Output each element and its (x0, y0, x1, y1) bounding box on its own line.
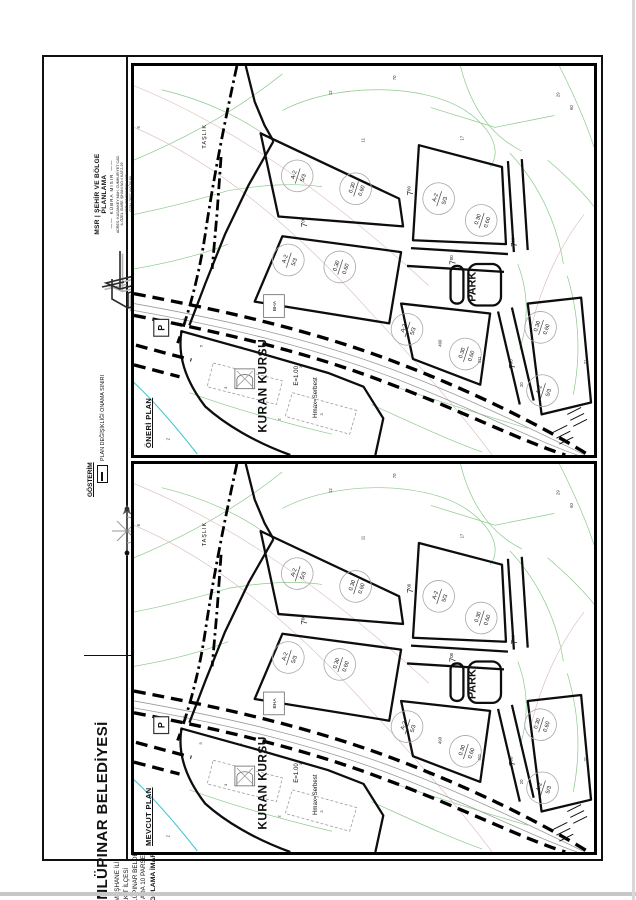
svg-text:5/3: 5/3 (545, 785, 553, 794)
svg-text:0.30: 0.30 (348, 579, 357, 591)
plan-sheet: MSR | ŞEHİR VE BÖLGE PLANLAMA KÜBRA MISI… (0, 0, 636, 900)
svg-text:490: 490 (438, 736, 443, 744)
onama-siniri-symbol (97, 465, 108, 483)
legend-title: GÖSTERİM (87, 355, 94, 497)
svg-text:3: 3 (299, 366, 303, 368)
svg-text:700: 700 (510, 237, 519, 247)
onama-boundary (178, 464, 237, 740)
svg-text:0.30: 0.30 (533, 320, 542, 332)
map-oneri: A-2 5/3 A-2 5/3 A-2 5/3 A-2 5/3 A-2 5/3 … (134, 66, 594, 455)
label-park: PARK (466, 669, 478, 699)
firm-person: KÜBRA MISIR (109, 141, 114, 247)
sidebar: MSR | ŞEHİR VE BÖLGE PLANLAMA KÜBRA MISI… (42, 55, 128, 861)
svg-text:5: 5 (199, 742, 203, 744)
svg-text:A-2: A-2 (290, 568, 298, 578)
svg-text:411: 411 (477, 356, 482, 363)
svg-text:12: 12 (328, 90, 333, 95)
svg-text:700: 700 (508, 756, 517, 766)
firm-name: MSR | ŞEHİR VE BÖLGE PLANLAMA (94, 141, 108, 247)
legend-item-label: PLAN DEĞİŞİKLİĞİ ONAMA SINIRI (100, 375, 106, 461)
municipality-title: ÜNLÜPINAR BELEDİYESİ (94, 663, 111, 900)
svg-text:31: 31 (583, 756, 588, 761)
svg-text:700: 700 (449, 255, 458, 265)
svg-text:A-2: A-2 (432, 193, 440, 203)
svg-text:0.30: 0.30 (458, 744, 467, 756)
svg-text:5/3: 5/3 (410, 724, 418, 733)
page-shadow-bottom (0, 892, 636, 896)
svg-text:700: 700 (406, 583, 415, 593)
svg-text:0.60: 0.60 (543, 323, 552, 335)
svg-text:0.30: 0.30 (348, 182, 357, 194)
ratio-circle: 0.30 0.60 (445, 731, 485, 771)
hatch-marks (553, 805, 587, 842)
building-footprints (207, 760, 356, 831)
svg-text:5/3: 5/3 (410, 327, 418, 336)
svg-text:13: 13 (182, 715, 187, 720)
zoning-circle: A-2 5/3 (387, 309, 427, 349)
svg-text:0.30: 0.30 (332, 657, 341, 669)
svg-text:A-2: A-2 (290, 170, 298, 180)
svg-text:60: 60 (569, 105, 574, 110)
svg-text:6: 6 (136, 126, 141, 129)
svg-text:2: 2 (166, 834, 171, 837)
zoning-circle: A-2 5/3 (277, 156, 317, 196)
svg-text:5/3: 5/3 (545, 388, 553, 397)
label-kuran-kursu: KURAN KURSU (256, 736, 270, 830)
map-mevcut: A-2 5/3 A-2 5/3 A-2 5/3 A-2 5/3 A-2 5/3 … (134, 464, 594, 852)
svg-text:700: 700 (508, 359, 517, 369)
svg-text:700: 700 (448, 652, 457, 662)
label-taslik: TAŞLIK (202, 522, 208, 547)
svg-text:A-2: A-2 (432, 590, 440, 600)
zoning-circle: A-2 5/3 (268, 638, 308, 678)
svg-text:31: 31 (583, 359, 588, 364)
svg-text:A-2: A-2 (536, 782, 544, 792)
page-shadow-right (632, 0, 635, 900)
label-bha: BHA (272, 698, 278, 709)
svg-text:29: 29 (555, 92, 560, 97)
panel-oneri-plan: A-2 5/3 A-2 5/3 A-2 5/3 A-2 5/3 A-2 5/3 … (131, 63, 597, 458)
svg-text:0.60: 0.60 (342, 661, 351, 673)
parcel-outlines (180, 464, 591, 852)
svg-text:5: 5 (239, 346, 243, 348)
svg-text:5/3: 5/3 (300, 173, 308, 182)
zoning-circle: A-2 5/3 (419, 179, 459, 219)
ratio-circle: 0.30 0.60 (336, 169, 376, 209)
svg-text:12: 12 (328, 488, 333, 493)
zoning-circle: A-2 5/3 (268, 240, 308, 280)
hatch-marks (553, 407, 587, 444)
svg-text:17: 17 (459, 135, 464, 140)
province-line: GÜMÜŞHANE İLİ (114, 663, 123, 900)
svg-text:3: 3 (320, 413, 324, 415)
svg-text:2: 2 (277, 418, 281, 420)
svg-text:700: 700 (406, 186, 415, 196)
svg-text:29: 29 (555, 490, 560, 495)
cadastral-lines (134, 66, 594, 452)
panel-label-mevcut: MEVCUT PLAN (144, 776, 156, 846)
svg-text:6: 6 (136, 523, 141, 526)
svg-text:700: 700 (510, 635, 519, 645)
svg-text:5/3: 5/3 (291, 655, 299, 664)
svg-text:A-2: A-2 (536, 385, 544, 395)
ratio-circle: 0.30 0.60 (445, 334, 485, 374)
mosque-icon (235, 369, 255, 389)
svg-text:411: 411 (477, 753, 482, 760)
svg-text:490: 490 (438, 339, 443, 347)
ratio-circle: 0.30 0.60 (320, 247, 360, 287)
mosque-icon (235, 766, 255, 786)
svg-text:A-2: A-2 (281, 652, 289, 662)
svg-text:0.60: 0.60 (467, 747, 476, 759)
label-park: PARK (466, 272, 478, 302)
svg-text:0.60: 0.60 (467, 350, 476, 362)
label-parking: P (157, 722, 167, 728)
svg-text:5: 5 (239, 743, 243, 745)
svg-text:5/3: 5/3 (300, 571, 308, 580)
svg-text:20: 20 (519, 779, 524, 784)
parcel-outlines (180, 66, 591, 455)
svg-text:0.60: 0.60 (543, 721, 552, 733)
label-hmax: Hmax=Serbest (312, 377, 319, 418)
svg-text:5: 5 (199, 345, 203, 347)
svg-text:0.60: 0.60 (483, 614, 492, 626)
zoning-circle: A-2 5/3 (419, 576, 459, 616)
svg-text:2: 2 (166, 437, 171, 440)
svg-text:5/3: 5/3 (291, 258, 299, 267)
svg-text:60: 60 (569, 502, 574, 507)
svg-text:A-2: A-2 (281, 254, 289, 264)
svg-text:70: 70 (392, 75, 397, 80)
label-hmax: Hmax=Serbest (312, 774, 319, 815)
ratio-circle: 0.30 0.60 (320, 645, 360, 685)
ratio-circle: 0.30 0.60 (461, 598, 501, 638)
svg-text:13: 13 (182, 317, 187, 322)
label-kuran-kursu: KURAN KURSU (256, 339, 270, 433)
label-taslik: TAŞLIK (202, 124, 208, 149)
ratio-circle: 0.30 0.60 (336, 567, 376, 607)
svg-text:0.60: 0.60 (483, 217, 492, 229)
panel-label-oneri: ÖNERİ PLAN (144, 378, 156, 448)
svg-text:17: 17 (459, 533, 464, 538)
svg-text:5/3: 5/3 (441, 196, 449, 205)
svg-text:0.60: 0.60 (358, 185, 367, 197)
svg-text:70: 70 (392, 473, 397, 478)
svg-text:5/3: 5/3 (441, 594, 449, 603)
svg-text:3: 3 (299, 763, 303, 765)
label-bha: BHA (272, 300, 278, 311)
zoning-circle: A-2 5/3 (387, 707, 427, 747)
svg-text:0.30: 0.30 (474, 213, 483, 225)
building-footprints (207, 363, 356, 434)
svg-text:11: 11 (360, 137, 365, 142)
legend-block: GÖSTERİM PLAN DEĞİŞİKLİĞİ ONAMA SINIRI (87, 355, 124, 497)
svg-text:0.30: 0.30 (533, 718, 542, 730)
svg-text:0.60: 0.60 (342, 263, 351, 275)
svg-text:11: 11 (360, 535, 365, 540)
svg-text:0.30: 0.30 (332, 260, 341, 272)
panel-mevcut-plan: A-2 5/3 A-2 5/3 A-2 5/3 A-2 5/3 A-2 5/3 … (131, 461, 597, 855)
svg-text:0.30: 0.30 (474, 611, 483, 623)
label-parking: P (157, 325, 167, 331)
cadastral-lines (134, 464, 594, 849)
svg-text:3: 3 (224, 784, 228, 786)
svg-text:0.30: 0.30 (458, 347, 467, 359)
onama-boundary (178, 66, 237, 343)
svg-text:20: 20 (519, 382, 524, 387)
svg-text:2: 2 (277, 815, 281, 817)
svg-text:3: 3 (320, 810, 324, 812)
svg-text:3: 3 (224, 387, 228, 389)
svg-text:0.60: 0.60 (358, 583, 367, 595)
ratio-circle: 0.30 0.60 (461, 200, 501, 240)
zoning-circle: A-2 5/3 (277, 554, 317, 594)
